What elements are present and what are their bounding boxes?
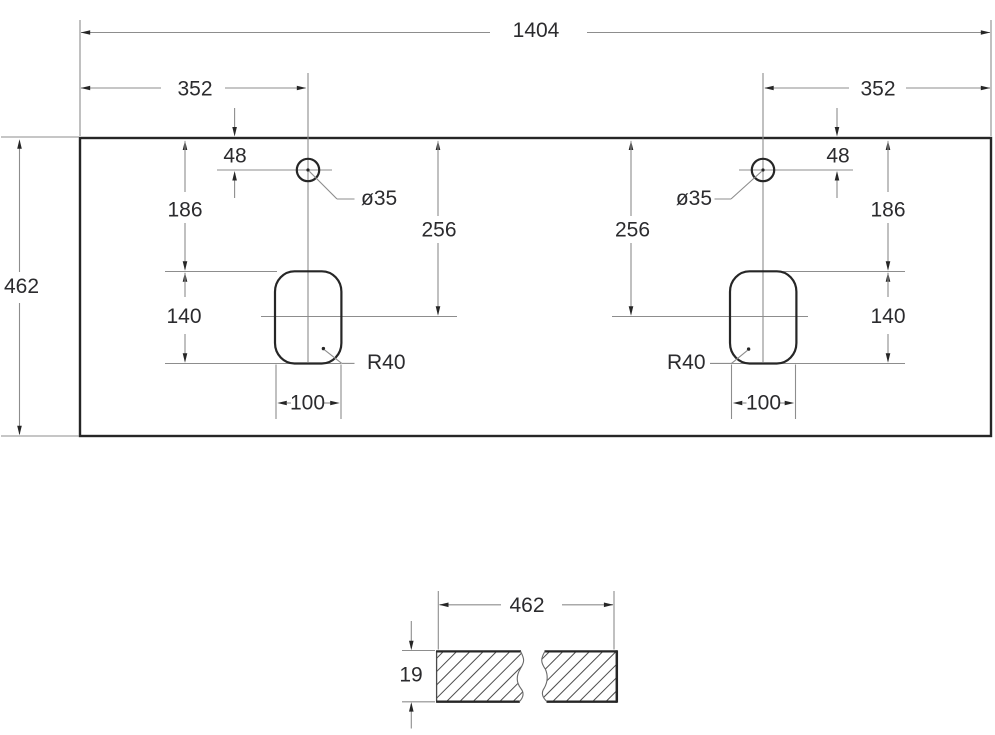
svg-text:R40: R40 <box>367 351 406 374</box>
svg-text:ø35: ø35 <box>676 187 712 210</box>
svg-text:256: 256 <box>421 219 456 242</box>
svg-text:352: 352 <box>177 78 212 101</box>
svg-text:186: 186 <box>870 199 905 222</box>
svg-text:462: 462 <box>4 275 39 298</box>
svg-text:1404: 1404 <box>513 19 560 42</box>
svg-text:R40: R40 <box>667 351 706 374</box>
svg-text:140: 140 <box>166 305 201 328</box>
svg-text:256: 256 <box>615 219 650 242</box>
svg-text:352: 352 <box>860 78 895 101</box>
svg-text:48: 48 <box>826 145 849 168</box>
svg-text:19: 19 <box>399 664 422 687</box>
svg-text:462: 462 <box>509 594 544 617</box>
svg-text:48: 48 <box>223 145 246 168</box>
svg-text:186: 186 <box>167 199 202 222</box>
svg-text:100: 100 <box>290 392 325 415</box>
svg-text:100: 100 <box>746 392 781 415</box>
svg-text:140: 140 <box>870 305 905 328</box>
svg-text:ø35: ø35 <box>361 187 397 210</box>
